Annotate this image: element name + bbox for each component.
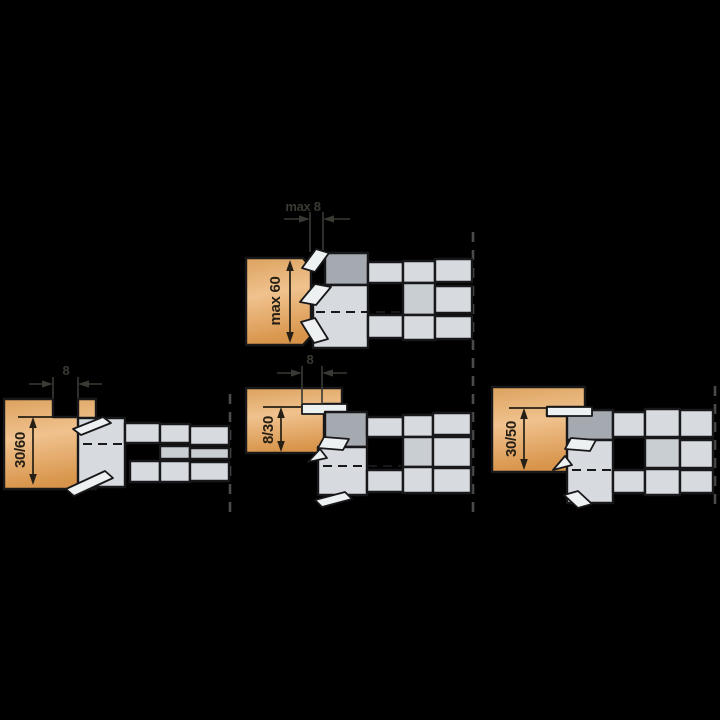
dimension-line bbox=[284, 212, 350, 252]
dimension-label: 8 bbox=[63, 363, 70, 378]
spacer-ring bbox=[645, 438, 680, 468]
spacer-ring bbox=[403, 437, 433, 467]
dimension-label: 30/50 bbox=[503, 421, 520, 457]
knife-insert bbox=[565, 438, 596, 451]
spacer-ring bbox=[403, 415, 433, 437]
knife-insert bbox=[547, 407, 592, 416]
spacer-ring bbox=[403, 467, 433, 493]
spacer-ring bbox=[433, 468, 471, 493]
top-arm bbox=[125, 423, 160, 443]
arrowhead bbox=[299, 215, 310, 222]
diagram-max-capacity: max 8 max 60 bbox=[246, 199, 472, 348]
spacer-ring bbox=[160, 446, 190, 459]
spacer-ring bbox=[433, 437, 471, 467]
spacer-ring bbox=[433, 413, 471, 435]
dimension-label: 8/30 bbox=[260, 416, 277, 444]
spacer-ring bbox=[435, 316, 472, 339]
spacer-ring bbox=[403, 261, 435, 283]
dimension-label: 8 bbox=[307, 352, 314, 367]
arrowhead bbox=[78, 380, 89, 387]
bottom-arm bbox=[368, 315, 403, 338]
top-arm bbox=[368, 262, 403, 283]
arrowhead bbox=[322, 369, 333, 376]
bottom-arm bbox=[130, 461, 160, 482]
dimension-line bbox=[29, 377, 102, 398]
spacer-ring bbox=[190, 462, 229, 481]
top-arm bbox=[613, 412, 645, 437]
knife-insert bbox=[318, 437, 349, 450]
spacer-ring bbox=[645, 469, 680, 495]
arrowhead bbox=[291, 369, 302, 376]
width-dimension: max 8 bbox=[284, 199, 350, 252]
technical-illustration: max 8 max 60 8 bbox=[0, 0, 720, 720]
diagram-rebate-30-50: 30/50 bbox=[492, 387, 713, 508]
bottom-arm bbox=[613, 470, 645, 493]
top-arm bbox=[367, 417, 403, 437]
spacer-ring bbox=[435, 259, 472, 282]
dimension-label: 30/60 bbox=[12, 432, 29, 468]
dimension-label: max 60 bbox=[267, 276, 284, 325]
spacer-ring bbox=[160, 461, 190, 482]
spacer-ring bbox=[680, 410, 713, 437]
spacer-ring bbox=[160, 424, 190, 443]
spacer-ring bbox=[645, 409, 680, 437]
width-dimension: 8 bbox=[29, 363, 102, 398]
spacer-ring bbox=[435, 286, 472, 313]
diagram-groove-30-60: 8 30/60 bbox=[4, 363, 229, 496]
diagram-rebate-8-30: 8 8/30 bbox=[246, 352, 471, 507]
spacer-ring bbox=[190, 426, 229, 445]
dimension-label: max 8 bbox=[285, 199, 320, 214]
clamp-block bbox=[325, 253, 368, 285]
spacer-ring bbox=[680, 440, 713, 468]
cutter-body bbox=[318, 447, 367, 495]
spacer-ring bbox=[190, 448, 229, 459]
spacer-ring bbox=[680, 470, 713, 493]
arrowhead bbox=[42, 380, 53, 387]
spacer-ring bbox=[403, 315, 435, 340]
bottom-arm bbox=[367, 470, 403, 492]
arrowhead bbox=[323, 215, 334, 222]
spacer-ring bbox=[403, 283, 435, 315]
